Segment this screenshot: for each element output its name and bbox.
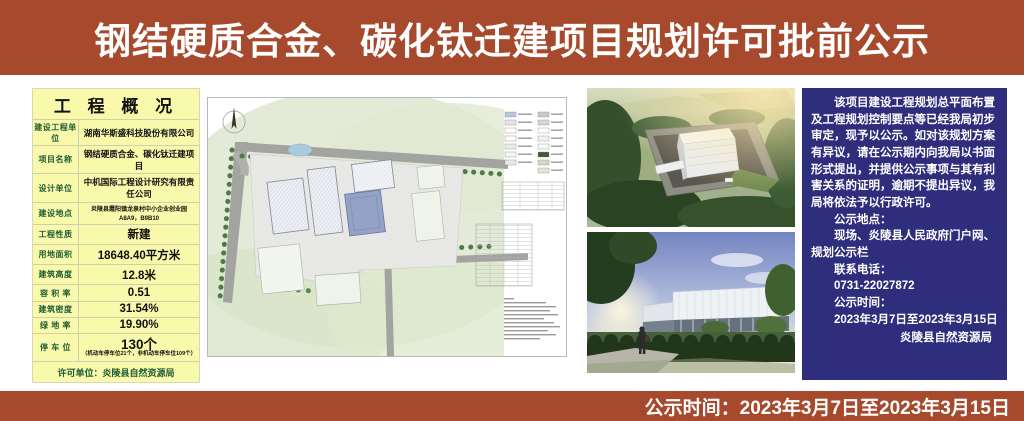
table-row: 项目名称 钢结硬质合金、碳化钛迁建项目 (33, 146, 199, 174)
aerial-photo-svg (587, 88, 795, 227)
row-label: 设计单位 (33, 174, 79, 201)
building-1 (267, 178, 309, 234)
indicator-table-1 (502, 182, 564, 210)
row-value: 新建 (79, 225, 199, 244)
notice-text-panel: 该项目建设工程规划总平面布置及工程规划控制要点等已经我局初步审定，现予以公示。如… (802, 88, 1007, 380)
permit-authority: 许可单位：炎陵县自然资源局 (33, 362, 199, 382)
indicator-table-2 (476, 224, 532, 286)
row-value: 炎陵县霞阳镇龙泉村中小企业创业园A8A9，B9B10 (79, 203, 199, 224)
title-banner: 钢结硬质合金、碳化钛迁建项目规划许可批前公示 (0, 0, 1024, 75)
parking-note: （机动车停车位21个，非机动车停车位109个） (82, 352, 196, 358)
table-row: 工程性质 新建 (33, 225, 199, 245)
table-title: 工 程 概 况 (33, 89, 199, 120)
notice-phone-number: 0731-22027872 (811, 278, 998, 295)
notice-location-label: 公示地点： (811, 212, 998, 229)
street-photo-svg (587, 232, 795, 373)
table-row: 建设地点 炎陵县霞阳镇龙泉村中小企业创业园A8A9，B9B10 (33, 203, 199, 225)
row-value: 18648.40平方米 (79, 245, 199, 264)
row-value: 19.90% (79, 318, 199, 333)
site-plan-svg (208, 98, 566, 356)
row-value: 130个 （机动车停车位21个，非机动车停车位109个） (79, 334, 199, 361)
row-value: 0.51 (79, 285, 199, 300)
notice-time-value: 2023年3月7日至2023年3月15日 (811, 312, 998, 329)
row-label: 项目名称 (33, 146, 79, 173)
row-label: 建筑密度 (33, 302, 79, 317)
notice-paragraph: 该项目建设工程规划总平面布置及工程规划控制要点等已经我局初步审定，现予以公示。如… (811, 95, 998, 212)
project-overview-table: 工 程 概 况 建设工程单位 湖南华斯盛科技股份有限公司 项目名称 钢结硬质合金… (32, 88, 200, 383)
row-label: 建筑高度 (33, 265, 79, 284)
row-label: 容 积 率 (33, 285, 79, 300)
notice-location-value: 现场、炎陵县人民政府门户网、规划公示栏 (811, 228, 998, 261)
notice-time-label: 公示时间： (811, 295, 998, 312)
row-value: 湖南华斯盛科技股份有限公司 (79, 120, 199, 145)
site-plan-drawing (207, 97, 567, 357)
table-row: 设计单位 中机国际工程设计研究有限责任公司 (33, 174, 199, 202)
footer-banner: 公示时间：2023年3月7日至2023年3月15日 (0, 391, 1024, 421)
row-value: 钢结硬质合金、碳化钛迁建项目 (79, 146, 199, 173)
publicity-time: 公示时间：2023年3月7日至2023年3月15日 (645, 393, 1024, 420)
table-row: 建筑高度 12.8米 (33, 265, 199, 285)
notice-signature: 炎陵县自然资源局 (811, 330, 998, 347)
row-label: 绿 地 率 (33, 318, 79, 333)
poster-title: 钢结硬质合金、碳化钛迁建项目规划许可批前公示 (94, 11, 930, 65)
table-row-parking: 停 车 位 130个 （机动车停车位21个，非机动车停车位109个） (33, 334, 199, 362)
row-value: 中机国际工程设计研究有限责任公司 (79, 174, 199, 201)
row-label: 停 车 位 (33, 334, 79, 361)
building-3 (351, 160, 394, 193)
street-rendering-photo (587, 232, 795, 373)
row-label: 工程性质 (33, 225, 79, 244)
table-row: 建筑密度 31.54% (33, 302, 199, 318)
notice-poster: 钢结硬质合金、碳化钛迁建项目规划许可批前公示 工 程 概 况 建设工程单位 湖南… (0, 0, 1024, 421)
row-label: 建设地点 (33, 203, 79, 224)
row-label: 建设工程单位 (33, 120, 79, 145)
sunlight-glow (587, 88, 795, 227)
notice-phone-label: 联系电话： (811, 262, 998, 279)
pond (288, 144, 312, 156)
row-value: 12.8米 (79, 265, 199, 284)
table-row: 容 积 率 0.51 (33, 285, 199, 301)
row-value: 31.54% (79, 302, 199, 317)
table-row: 建设工程单位 湖南华斯盛科技股份有限公司 (33, 120, 199, 146)
table-row: 用地面积 18648.40平方米 (33, 245, 199, 265)
table-row: 绿 地 率 19.90% (33, 318, 199, 334)
aerial-rendering-photo (587, 88, 795, 227)
cloud (711, 253, 763, 267)
building-main-blue (345, 190, 386, 236)
row-label: 用地面积 (33, 245, 79, 264)
parking-count: 130个 (121, 338, 157, 352)
